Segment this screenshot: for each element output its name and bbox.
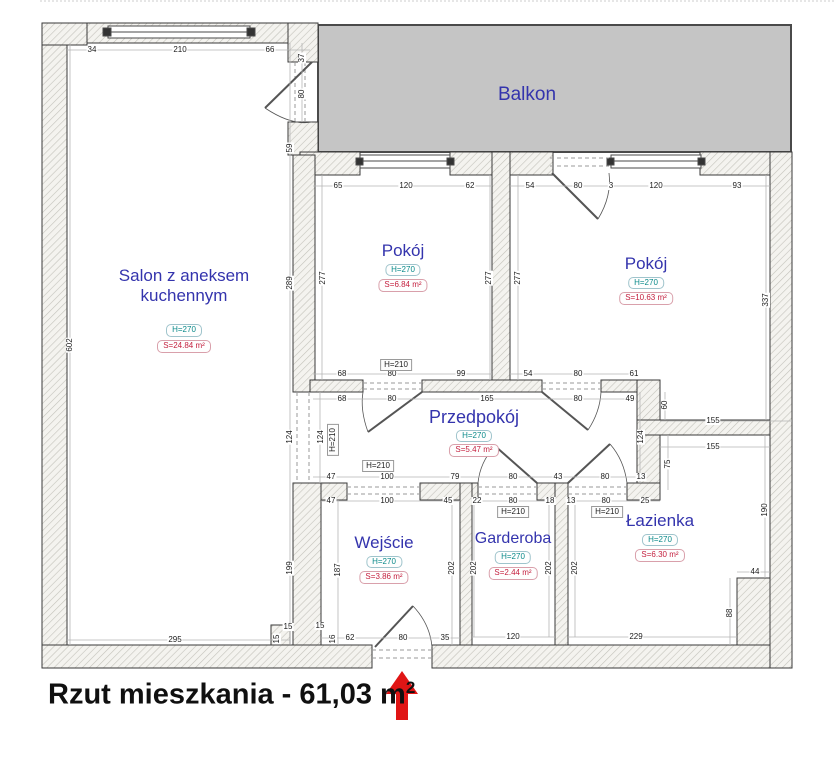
dimension-label: 277 — [514, 270, 522, 285]
room-height-badge: H=270 — [166, 324, 202, 337]
room-height-badge: H=270 — [366, 556, 402, 569]
plan-title-text: Rzut mieszkania - 61,03 m — [48, 679, 406, 711]
room-label-pokoj-2: Pokój H=270 S=10.63 m² — [619, 254, 673, 305]
dimension-label: 62 — [345, 634, 356, 642]
room-name: Przedpokój — [429, 407, 519, 428]
dimension-label: 16 — [329, 634, 337, 645]
dimension-label: 68 — [337, 370, 348, 378]
dimension-label: 35 — [440, 634, 451, 642]
dimension-label: 602 — [66, 337, 74, 352]
dimension-label: 13 — [636, 473, 647, 481]
dimension-label: 295 — [167, 636, 182, 644]
dimension-label: 120 — [505, 633, 520, 641]
dimension-label: 80 — [508, 497, 519, 505]
dimension-label: 80 — [601, 497, 612, 505]
dimension-label: 190 — [761, 502, 769, 517]
room-label-garderoba: Garderoba H=270 S=2.44 m² — [475, 530, 552, 580]
dimension-label: 80 — [508, 473, 519, 481]
dimension-label: 124 — [637, 429, 645, 444]
dimension-label: 37 — [298, 53, 306, 64]
room-name: Wejście — [354, 533, 413, 553]
dimension-label: 68 — [337, 395, 348, 403]
dimension-label: 62 — [465, 182, 476, 190]
dimension-label: 61 — [629, 370, 640, 378]
room-height-badge: H=270 — [385, 264, 421, 277]
dimension-label: 15 — [273, 634, 281, 645]
dimension-label: 155 — [705, 443, 720, 451]
dimension-label: 80 — [298, 89, 306, 100]
dimension-label: 15 — [315, 622, 326, 630]
dimension-label: 100 — [379, 473, 394, 481]
dimension-label: 120 — [648, 182, 663, 190]
dimension-label: 229 — [628, 633, 643, 641]
dimension-label: 3 — [608, 182, 614, 190]
dimension-label: 54 — [523, 370, 534, 378]
dimension-label: H=210 — [591, 506, 623, 518]
room-name: Salon z aneksem kuchennym — [99, 266, 269, 305]
dimension-label: 124 — [317, 429, 325, 444]
dimension-label: 60 — [661, 400, 669, 411]
dimension-label: 165 — [479, 395, 494, 403]
dimension-label: 80 — [573, 395, 584, 403]
dimension-label: 59 — [286, 143, 294, 154]
dimension-label: 199 — [286, 560, 294, 575]
plan-title: Rzut mieszkania - 61,03 m2 — [48, 678, 415, 712]
room-area-badge: S=6.30 m² — [635, 549, 684, 562]
room-area-badge: S=10.63 m² — [619, 292, 673, 305]
dimension-label: 80 — [398, 634, 409, 642]
dimension-label: 210 — [172, 46, 187, 54]
plan-title-sup: 2 — [406, 678, 415, 697]
room-name: Łazienka — [626, 511, 694, 531]
dimension-label: 79 — [450, 473, 461, 481]
room-height-badge: H=270 — [456, 430, 492, 443]
dimension-label: 277 — [319, 270, 327, 285]
room-label-lazienka: Łazienka H=270 S=6.30 m² — [626, 511, 694, 562]
dimension-label: 88 — [726, 608, 734, 619]
room-height-badge: H=270 — [495, 551, 531, 564]
dimension-label: 44 — [750, 568, 761, 576]
dimension-label: 120 — [398, 182, 413, 190]
room-name: Garderoba — [475, 530, 552, 548]
dimension-label: 45 — [443, 497, 454, 505]
dimension-label: 75 — [664, 459, 672, 470]
dimension-label: 54 — [525, 182, 536, 190]
room-area-badge: S=5.47 m² — [449, 444, 498, 457]
dimension-label: 80 — [573, 182, 584, 190]
dimension-label: H=210 — [497, 506, 529, 518]
dimension-label: 80 — [387, 395, 398, 403]
room-height-badge: H=270 — [628, 277, 664, 290]
room-area-badge: S=3.86 m² — [359, 571, 408, 584]
room-name: Pokój — [625, 254, 668, 274]
dimension-label: 65 — [333, 182, 344, 190]
room-label-pokoj-1: Pokój H=270 S=6.84 m² — [378, 241, 427, 292]
dimension-label: 18 — [545, 497, 556, 505]
dimension-label: 80 — [573, 370, 584, 378]
room-name: Pokój — [382, 241, 425, 261]
dimension-label: H=210 — [327, 424, 339, 456]
floor-plan-drawing — [0, 0, 839, 768]
dimension-label: H=210 — [362, 460, 394, 472]
dimension-label: 202 — [448, 560, 456, 575]
room-height-badge: H=270 — [642, 534, 678, 547]
dimension-label: 155 — [705, 417, 720, 425]
dimension-label: 15 — [283, 623, 294, 631]
dimension-label: 93 — [732, 182, 743, 190]
room-area-badge: S=24.84 m² — [157, 340, 211, 353]
floor-plan: 3421066378059602289277651206227754803120… — [0, 0, 839, 768]
room-label-przedpokoj: Przedpokój H=270 S=5.47 m² — [429, 407, 519, 457]
dimension-label: 66 — [265, 46, 276, 54]
room-label-wejscie: Wejście H=270 S=3.86 m² — [354, 533, 413, 584]
room-label-salon: Salon z aneksem kuchennym H=270 S=24.84 … — [99, 266, 269, 353]
dimension-label: 277 — [485, 270, 493, 285]
dimension-label: 202 — [571, 560, 579, 575]
room-name: Balkon — [498, 84, 556, 106]
dimension-label: 80 — [600, 473, 611, 481]
room-area-badge: S=6.84 m² — [378, 279, 427, 292]
dimension-label: 13 — [566, 497, 577, 505]
dimension-label: 47 — [326, 473, 337, 481]
dimension-label: 22 — [472, 497, 483, 505]
dimension-label: 25 — [640, 497, 651, 505]
room-area-badge: S=2.44 m² — [488, 567, 537, 580]
dimension-label: 47 — [326, 497, 337, 505]
dimension-label: 34 — [87, 46, 98, 54]
dimension-label: 289 — [286, 275, 294, 290]
dimension-label: 80 — [387, 370, 398, 378]
dimension-label: 99 — [456, 370, 467, 378]
dimension-label: 187 — [334, 562, 342, 577]
room-label-balkon: Balkon — [498, 84, 556, 106]
dimension-label: 337 — [762, 292, 770, 307]
dimension-label: 49 — [625, 395, 636, 403]
dimension-label: 43 — [553, 473, 564, 481]
dimension-label: 100 — [379, 497, 394, 505]
dimension-label: H=210 — [380, 359, 412, 371]
dimension-label: 124 — [286, 429, 294, 444]
